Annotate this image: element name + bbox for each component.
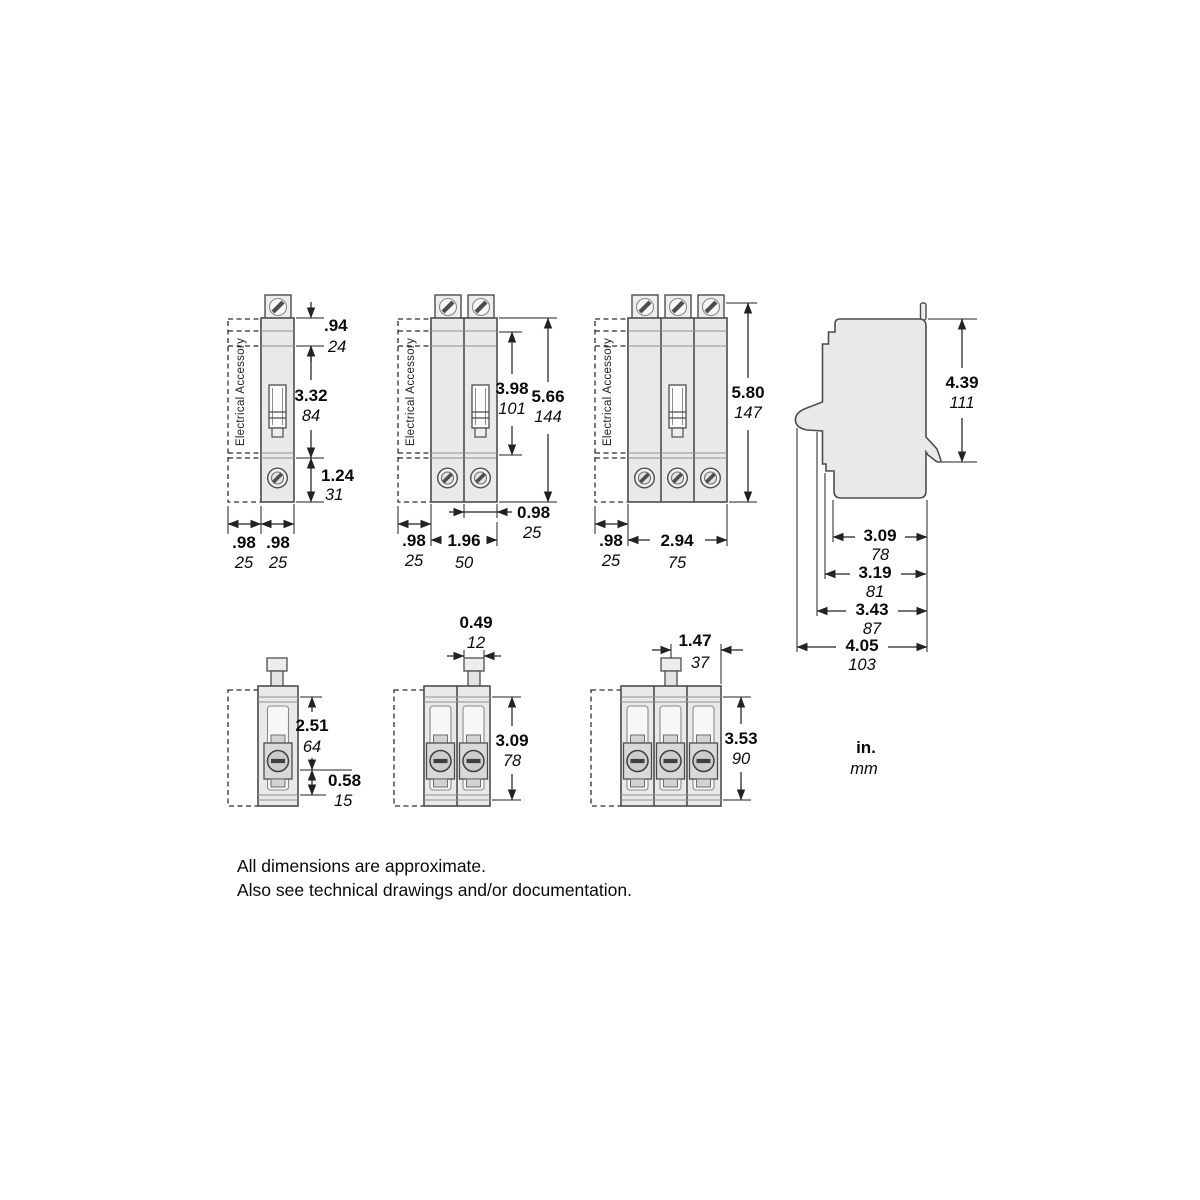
- breaker-dimension-drawing: Electrical Accessory .94 24 3.32 84 1.24…: [0, 0, 1200, 1200]
- front-view-3pole: Electrical Accessory 5.80 147 .98 25 2.9…: [595, 295, 765, 572]
- wire-lug-icon: [657, 706, 685, 790]
- dim-side-d1-mm: 78: [871, 546, 890, 564]
- dim-side-d4-mm: 103: [848, 656, 876, 674]
- dim-f2-accw-in: .98: [402, 531, 426, 550]
- wire-lug-icon: [264, 706, 292, 790]
- front-view-1pole: Electrical Accessory .94 24 3.32 84 1.24…: [228, 295, 355, 572]
- accessory-label: Electrical Accessory: [405, 338, 417, 446]
- dim-f2-upper-in: 3.98: [495, 379, 528, 398]
- wire-lug-icon: [624, 706, 652, 790]
- terminal-pin: [921, 303, 927, 320]
- dim-side-d2-mm: 81: [866, 583, 884, 601]
- side-view: 4.39 111 3.09 78 3.19 81 3.43 87 4.05 10…: [795, 303, 978, 674]
- accessory-outline: [591, 690, 621, 806]
- accessory-label: Electrical Accessory: [602, 338, 614, 446]
- accessory-label: Electrical Accessory: [235, 338, 247, 446]
- dim-t1-lug-mm: 15: [334, 792, 353, 810]
- dim-t2-depth-mm: 78: [503, 752, 522, 770]
- lug-screw-icon: [268, 468, 288, 488]
- dim-t2-depth-in: 3.09: [495, 731, 528, 750]
- footnote-line-1: All dimensions are approximate.: [237, 856, 486, 877]
- wire-lug-icon: [460, 706, 488, 790]
- dim-f1-top-mm: 24: [327, 338, 346, 356]
- footnote-line-2: Also see technical drawings and/or docum…: [237, 880, 632, 901]
- dim-f2-polew-mm: 25: [522, 524, 542, 542]
- dim-f2-totw-in: 1.96: [447, 531, 480, 550]
- lug-screw-icon: [668, 468, 688, 488]
- toggle-handle-icon: [472, 385, 489, 437]
- dim-f1-top-in: .94: [324, 316, 348, 335]
- lug-screw-icon: [701, 468, 721, 488]
- dim-f1-mid-in: 3.32: [294, 386, 327, 405]
- dim-t3-offset-in: 1.47: [678, 631, 711, 650]
- dim-f1-mid-mm: 84: [302, 407, 320, 425]
- accessory-outline: [394, 690, 424, 806]
- dim-f1-accw-in: .98: [232, 533, 256, 552]
- terminal-screw-icon: [698, 295, 724, 319]
- dim-f3-totw-mm: 75: [668, 554, 687, 572]
- accessory-outline: [228, 690, 258, 806]
- toggle-handle-icon: [269, 385, 286, 437]
- dim-f3-total-in: 5.80: [731, 383, 764, 402]
- dim-t3-offset-mm: 37: [691, 654, 710, 672]
- dim-t1-upper-mm: 64: [303, 738, 321, 756]
- lug-screw-icon: [471, 468, 491, 488]
- dim-f2-accw-mm: 25: [404, 552, 424, 570]
- wire-lug-icon: [427, 706, 455, 790]
- dim-f2-total-in: 5.66: [531, 387, 564, 406]
- toggle-handle-top-icon: [267, 658, 287, 687]
- dim-side-d4-in: 4.05: [845, 636, 878, 655]
- dim-f1-bot-in: 1.24: [321, 466, 355, 485]
- toggle-handle-top-icon: [661, 658, 681, 687]
- dim-f2-totw-mm: 50: [455, 554, 474, 572]
- terminal-screw-icon: [665, 295, 691, 319]
- wire-lug-icon: [690, 706, 718, 790]
- dim-t3-depth-in: 3.53: [724, 729, 757, 748]
- terminal-screw-icon: [632, 295, 658, 319]
- top-view-3pole: 1.47 37 3.53 90: [591, 631, 758, 806]
- top-view-2pole: 0.49 12 3.09 78: [394, 613, 529, 806]
- lug-screw-icon: [438, 468, 458, 488]
- units-mm-label: mm: [850, 760, 878, 778]
- top-view-1pole: 2.51 64 0.58 15: [228, 658, 361, 810]
- dim-side-height-mm: 111: [949, 394, 974, 412]
- dim-side-d2-in: 3.19: [858, 563, 891, 582]
- dim-f3-accw-mm: 25: [601, 552, 621, 570]
- dim-side-d1-in: 3.09: [863, 526, 896, 545]
- front-view-2pole: Electrical Accessory 3.98 101 5.66 144 0…: [398, 295, 565, 572]
- dim-t1-upper-in: 2.51: [295, 716, 328, 735]
- dim-side-height-in: 4.39: [945, 373, 978, 392]
- dim-t1-lug-in: 0.58: [328, 771, 361, 790]
- dim-t3-depth-mm: 90: [732, 750, 751, 768]
- dim-f3-accw-in: .98: [599, 531, 623, 550]
- dim-f2-total-mm: 144: [534, 408, 562, 426]
- dim-f2-upper-mm: 101: [498, 400, 526, 418]
- dim-side-d3-in: 3.43: [855, 600, 888, 619]
- technical-drawing-svg: Electrical Accessory .94 24 3.32 84 1.24…: [0, 0, 1200, 1200]
- units-inches-label: in.: [856, 738, 876, 757]
- terminal-screw-icon: [468, 295, 494, 319]
- terminal-screw-icon: [265, 295, 291, 319]
- dim-f1-polew-in: .98: [266, 533, 290, 552]
- dim-f1-accw-mm: 25: [234, 554, 254, 572]
- dim-t2-handle-in: 0.49: [459, 613, 492, 632]
- toggle-handle-icon: [669, 385, 686, 437]
- units-legend: in. mm: [850, 738, 878, 778]
- toggle-handle-top-icon: [464, 658, 484, 687]
- dim-f1-bot-mm: 31: [325, 486, 343, 504]
- dim-f1-polew-mm: 25: [268, 554, 288, 572]
- dim-f3-total-mm: 147: [734, 404, 762, 422]
- dim-t2-handle-mm: 12: [467, 634, 485, 652]
- terminal-screw-icon: [435, 295, 461, 319]
- dim-f3-totw-in: 2.94: [660, 531, 694, 550]
- dim-f2-polew-in: 0.98: [517, 503, 550, 522]
- lug-screw-icon: [635, 468, 655, 488]
